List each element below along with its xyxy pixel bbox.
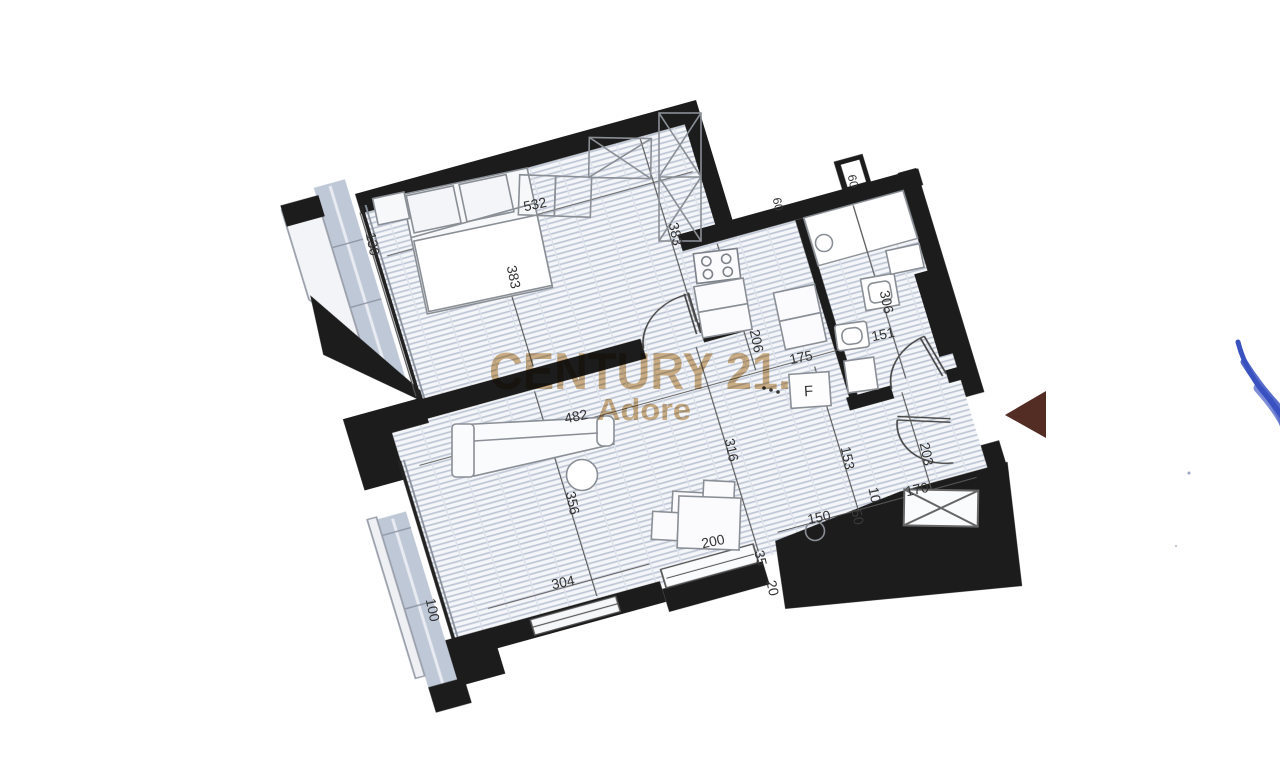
svg-text:35: 35 — [751, 549, 770, 568]
svg-text:Adore: Adore — [597, 392, 691, 427]
svg-text:20: 20 — [763, 579, 782, 598]
svg-text:F: F — [804, 383, 814, 401]
